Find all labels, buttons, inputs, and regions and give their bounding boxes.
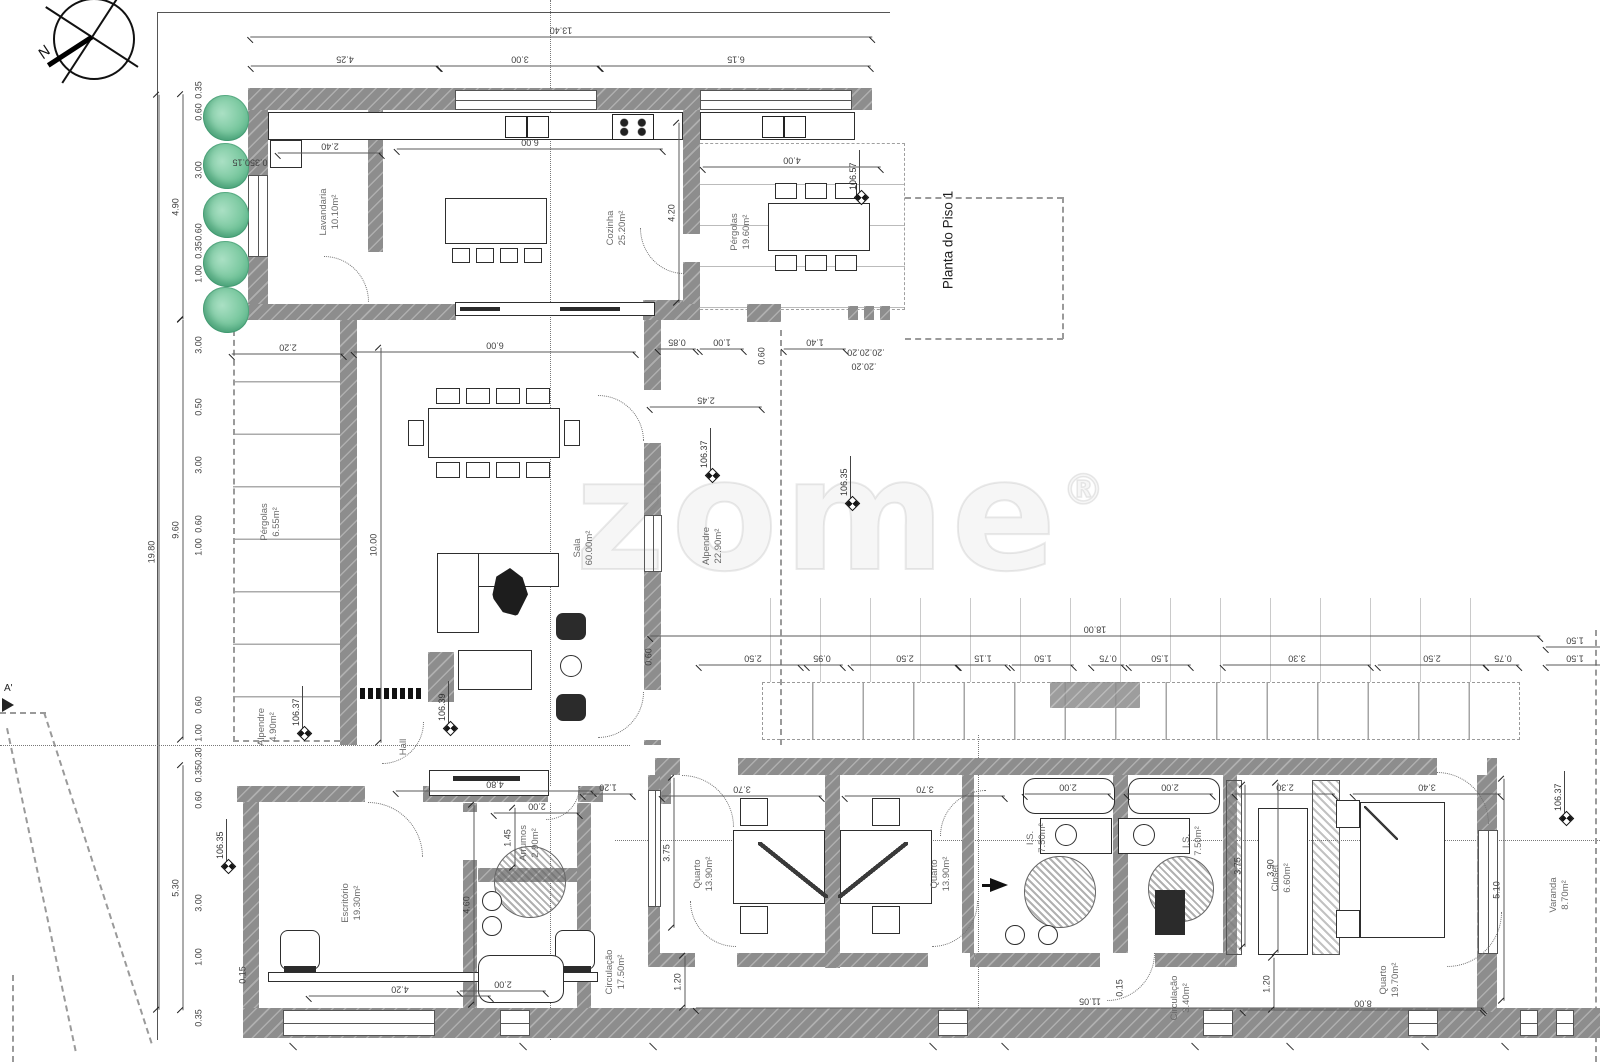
elevation-value: 106.35	[839, 456, 851, 498]
dimension-tick	[1501, 1043, 1509, 1051]
dimension-label: 3.00	[195, 894, 204, 912]
property-line	[1595, 630, 1597, 1062]
room-area: 22.90m²	[713, 527, 725, 565]
floor-plan-canvas: { "title": "Planta do Piso 1", "watermar…	[0, 0, 1600, 1062]
dimension-label: 6.00	[486, 341, 504, 350]
room-label: Alpendre 22.90m²	[701, 527, 725, 565]
room-area: 8.70m²	[1560, 877, 1572, 912]
dimension-value: 0.60	[194, 515, 204, 533]
dimension-label: 0.350.15	[232, 158, 267, 167]
dimension-label: 0.60	[195, 515, 204, 533]
dimension-value: 0.350.30	[194, 747, 204, 782]
chair	[466, 462, 490, 478]
room-name: Alpendre	[701, 527, 713, 565]
dimension-value: 0.60	[757, 347, 767, 365]
dimension-value: 3.00	[511, 55, 529, 65]
wall	[243, 1008, 1600, 1038]
pergola-bottom	[762, 682, 1520, 740]
elevation-value: 106.37	[1553, 771, 1565, 813]
dimension-value: 1.20	[1262, 975, 1272, 993]
window	[1556, 1010, 1574, 1036]
dimension-value: 1.50	[1034, 654, 1052, 664]
dimension-label: 3.75	[1234, 857, 1243, 875]
sink	[1133, 824, 1155, 846]
dimension-line	[397, 149, 663, 150]
dimension-label: 10.00	[370, 534, 379, 557]
wall	[683, 110, 700, 234]
room-area: 3.40m²	[1181, 976, 1193, 1021]
cabinet-detail	[460, 307, 500, 311]
dimension-line	[784, 349, 846, 350]
dimension-line	[1274, 958, 1275, 1010]
dimension-value: 1.50	[1566, 636, 1584, 646]
door-swing-arc	[690, 901, 736, 947]
room-area: 6.55m²	[271, 503, 283, 541]
dimension-label: 0.60	[195, 696, 204, 714]
dimension-label: 19.80	[148, 541, 157, 564]
dimension-value: 1.20	[599, 783, 617, 793]
pergola-beams	[770, 598, 1520, 682]
dimension-label: 1.20	[599, 783, 617, 792]
dimension-label: 6.00	[521, 138, 539, 147]
door-opening	[368, 252, 383, 304]
room-area: 19.60m²	[741, 213, 753, 251]
pergola-post	[747, 304, 781, 322]
dimension-label: 11.05	[1079, 997, 1101, 1006]
room-name: I.S.	[1025, 823, 1037, 853]
dimension-line	[601, 66, 871, 67]
dimension-value: 2.00	[528, 802, 546, 812]
dimension-line	[583, 794, 633, 795]
sink	[784, 116, 806, 138]
dimension-label: 2.00	[494, 980, 512, 989]
room-name: Circulação	[1169, 976, 1181, 1021]
dimension-value: 4.80	[486, 780, 504, 790]
room-label: Sala 60.00m²	[572, 531, 596, 566]
dimension-line	[650, 407, 762, 408]
dimension-value: 0.35	[194, 81, 204, 99]
window	[1203, 1010, 1233, 1036]
side-table	[560, 655, 582, 677]
dimension-line	[159, 95, 160, 1010]
chair	[775, 183, 797, 199]
dimension-label: 8.00	[1354, 999, 1372, 1008]
dimension-label: 2.50	[896, 654, 914, 663]
dimension-value: 4.20	[667, 204, 677, 222]
room-name: Quarto	[692, 857, 704, 892]
dimension-value: 3.00	[194, 894, 204, 912]
tree-icon	[203, 192, 249, 238]
dimension-label: 1.00	[195, 265, 204, 283]
dimension-value: 13.40	[550, 26, 573, 36]
dimension-value: .20.20	[851, 362, 876, 372]
elevation-value: 106.35	[215, 819, 227, 861]
dimension-line	[1353, 794, 1501, 795]
dimension-value: 0.35	[194, 1009, 204, 1027]
dimension-line	[460, 991, 546, 992]
chair	[408, 420, 424, 446]
dimension-label: 3.90	[1267, 859, 1276, 877]
room-name: Quarto	[929, 857, 941, 892]
dimension-value: 6.15	[727, 55, 745, 65]
dimension-value: 4.90	[171, 198, 181, 216]
dimension-value: 0.95	[813, 654, 831, 664]
dimension-value: 2.20	[279, 343, 297, 353]
registered-mark: ®	[1062, 465, 1110, 514]
dimension-value: 3.75	[1233, 857, 1243, 875]
coffee-table	[458, 650, 532, 690]
dimension-label: 1.00	[195, 538, 204, 556]
nightstand	[740, 906, 768, 934]
boundary-line	[157, 12, 890, 13]
dimension-label: 1.50	[1566, 654, 1584, 663]
wall	[1113, 775, 1128, 967]
bed-throw	[838, 842, 908, 898]
tree-icon	[203, 95, 249, 141]
room-area: 2.90m²	[530, 825, 542, 861]
room-label: Quarto 13.90m²	[929, 857, 953, 892]
door-opening	[683, 234, 700, 262]
sink	[505, 116, 527, 138]
dimension-value: 4.20	[391, 985, 409, 995]
dimension-line	[1127, 794, 1213, 795]
section-line	[0, 712, 46, 714]
pouf	[556, 613, 586, 640]
bidet	[482, 916, 502, 936]
dimension-value: 1.50	[1151, 654, 1169, 664]
dimension-value: 1.00	[194, 948, 204, 966]
room-label: Pérgolas 19.60m²	[729, 213, 753, 251]
dimension-label: 0.35	[195, 241, 204, 259]
dimension-label: 2.30	[1276, 783, 1294, 792]
chair	[805, 183, 827, 199]
dimension-line	[1546, 665, 1600, 666]
dimension-label: 0.95	[813, 654, 831, 663]
dimension-value: 3.75	[662, 844, 672, 862]
stool	[500, 248, 518, 263]
dimension-value: 1.15	[974, 654, 992, 664]
section-label: A'	[4, 683, 13, 694]
dimension-label: 2.00	[528, 802, 546, 811]
room-label: Varanda 8.70m²	[1548, 877, 1572, 912]
elevation-diamond-icon	[221, 859, 237, 875]
dimension-label: 0.75	[1099, 654, 1117, 663]
room-area: 7.50m²	[1193, 826, 1205, 856]
chair	[835, 255, 857, 271]
room-label: Quarto 13.90m²	[692, 857, 716, 892]
chair	[466, 388, 490, 404]
dimension-line	[1243, 1010, 1483, 1011]
room-label: Lavandaria 10.10m²	[318, 188, 342, 235]
dimension-line	[1278, 783, 1279, 953]
dimension-value: 2.00	[1161, 783, 1179, 793]
dimension-label: 3.75	[663, 844, 672, 862]
room-area: 6.60m²	[1282, 863, 1294, 893]
dimension-line	[1012, 665, 1074, 666]
pergola-post	[1050, 682, 1140, 708]
dimension-line	[1487, 665, 1520, 666]
office-chair-back	[284, 966, 316, 972]
dimension-tick	[929, 1043, 937, 1051]
dimension-label: 1.50	[1034, 654, 1052, 663]
window	[1520, 1010, 1538, 1036]
dimension-value: 19.80	[147, 541, 157, 564]
wall	[340, 320, 357, 745]
chair	[526, 388, 550, 404]
dimension-line	[1223, 665, 1371, 666]
sofa	[437, 553, 479, 633]
room-label: Arrumos 2.90m²	[518, 825, 542, 861]
toilet	[1005, 925, 1025, 945]
dimension-value: 3.70	[733, 785, 751, 795]
elevation-diamond-icon	[1559, 811, 1575, 827]
compass-icon: N	[35, 0, 147, 100]
room-name: Lavandaria	[318, 188, 330, 235]
door-swing-arc	[368, 802, 423, 857]
room-name: Alpendre	[256, 708, 268, 746]
dimension-value: 0.35	[194, 241, 204, 259]
pouf	[556, 694, 586, 721]
dimension-line	[1504, 779, 1505, 1001]
dimension-label: 0.60	[645, 648, 654, 666]
dimension-value: 0.60	[194, 696, 204, 714]
chair	[496, 462, 520, 478]
room-name: Quarto	[1378, 963, 1390, 998]
dimension-label: 2.50	[1423, 654, 1441, 663]
dimension-label: 18.00	[1084, 625, 1107, 634]
sink	[527, 116, 549, 138]
dimension-label: 0.35	[195, 1009, 204, 1027]
window	[938, 1010, 968, 1036]
elevation-value: 106.37	[699, 428, 711, 470]
dimension-label: 0.350.30	[195, 747, 204, 782]
stool	[452, 248, 470, 263]
dimension-label: 2.40	[321, 142, 339, 151]
room-area: 25.20m²	[617, 211, 629, 246]
pergola-post	[864, 306, 874, 320]
dimension-tick	[1286, 1043, 1294, 1051]
dimension-line	[1092, 665, 1125, 666]
dimension-label: 9.60	[172, 521, 181, 539]
dimension-label: .20.20.20	[847, 348, 885, 357]
dimension-line	[440, 66, 600, 67]
tree-icon	[203, 287, 249, 333]
dimension-label: 0.15	[1116, 979, 1125, 997]
dimension-value: 0.350.15	[232, 158, 267, 168]
dimension-label: 3.40	[1418, 783, 1436, 792]
dimension-label: 4.90	[172, 198, 181, 216]
room-label: I.S. 7.50m²	[1025, 823, 1049, 853]
room-name: Escritório	[340, 883, 352, 923]
chair	[436, 388, 460, 404]
dimension-label: 1.15	[974, 654, 992, 663]
dimension-value: 0.75	[1099, 654, 1117, 664]
section-arrow-icon	[2, 698, 14, 712]
pergola-outline	[905, 338, 1063, 340]
dimension-label: 1.45	[504, 829, 513, 847]
nightstand	[740, 798, 768, 826]
room-area: 13.90m²	[941, 857, 953, 892]
bed-throw	[758, 842, 828, 898]
window	[1408, 1010, 1438, 1036]
room-name: Circulação	[604, 950, 616, 995]
dimension-value: 1.00	[194, 538, 204, 556]
dimension-label: 2.45	[697, 396, 715, 405]
nightstand	[872, 906, 900, 934]
dimension-label: 0.15	[239, 966, 248, 984]
dimension-value: 8.00	[1354, 999, 1372, 1009]
dimension-line	[1378, 665, 1486, 666]
dimension-tick	[649, 1043, 657, 1051]
dimension-label: 0.35	[195, 81, 204, 99]
door-opening	[463, 812, 477, 860]
dimension-value: 2.00	[1059, 783, 1077, 793]
axis-line	[0, 745, 630, 746]
room-label: Circulação 17.50m²	[604, 950, 628, 995]
dimension-label: 0.60	[758, 347, 767, 365]
axis-line	[978, 735, 979, 1010]
dimension-label: 1.00	[713, 338, 731, 347]
door-swing-arc	[324, 256, 369, 302]
room-label: Hall	[398, 739, 410, 755]
dimension-label: 3.30	[1288, 654, 1306, 663]
elevation-value: 106.37	[291, 686, 303, 728]
dimension-line	[278, 153, 382, 154]
wall	[683, 262, 700, 304]
room-area: 10.10m²	[330, 188, 342, 235]
dimension-value: 1.00	[194, 724, 204, 742]
entry-arrow-icon	[990, 878, 1008, 892]
door-swing-arc	[940, 790, 986, 836]
dimension-line	[650, 636, 1540, 637]
door-opening	[365, 786, 423, 802]
dimension-label: 4.20	[391, 985, 409, 994]
chair	[526, 462, 550, 478]
dimension-line	[183, 95, 184, 320]
dimension-value: 6.00	[486, 341, 504, 351]
nightstand	[1336, 910, 1360, 938]
dimension-line	[674, 778, 675, 928]
dimension-label: 4.20	[668, 204, 677, 222]
door-swing-arc	[682, 775, 734, 827]
nightstand	[1336, 800, 1360, 828]
dimension-line	[183, 320, 184, 740]
dimension-line	[250, 37, 872, 38]
room-label: Escritório 19.30m²	[340, 883, 364, 923]
shower	[1024, 856, 1096, 928]
dimension-label: 0.60	[195, 791, 204, 809]
dimension-line	[679, 123, 680, 303]
dimension-label: 4.00	[783, 156, 801, 165]
dimension-value: 2.50	[1423, 654, 1441, 664]
room-area: 19.70m²	[1390, 963, 1402, 998]
dimension-line	[515, 808, 516, 868]
dimension-label: 3.70	[916, 785, 934, 794]
toilet	[482, 891, 502, 911]
dimension-label: 2.50	[744, 654, 762, 663]
dimension-value: 0.15	[238, 966, 248, 984]
dimension-label: 0.60	[195, 103, 204, 121]
room-name: I.S.	[1181, 826, 1193, 856]
pergola-left	[233, 330, 340, 742]
dimension-line	[1245, 785, 1246, 947]
pergola-post	[848, 306, 858, 320]
pergola-outline	[905, 197, 1063, 199]
dimension-label: 4.60	[463, 896, 472, 914]
pergola-outline	[1062, 197, 1064, 339]
dimension-value: 2.50	[744, 654, 762, 664]
dimension-line	[1235, 794, 1335, 795]
dimension-line	[699, 665, 807, 666]
dimension-line	[958, 665, 1008, 666]
dimension-label: 3.00	[195, 336, 204, 354]
sink	[1055, 824, 1077, 846]
dimension-label: 1.20	[674, 973, 683, 991]
room-area: 4.90m²	[268, 708, 280, 746]
window	[700, 90, 852, 110]
window	[648, 790, 661, 907]
section-line	[12, 975, 14, 1062]
chair	[805, 255, 827, 271]
dimension-label: 2.00	[1059, 783, 1077, 792]
dimension-value: 0.60	[194, 791, 204, 809]
dimension-value: 18.00	[1084, 625, 1107, 635]
room-area: 13.90m²	[704, 857, 716, 892]
stool	[524, 248, 542, 263]
room-area: 7.50m²	[1037, 823, 1049, 853]
dimension-value: 0.85	[668, 338, 686, 348]
dimension-value: 0.60	[194, 223, 204, 241]
dining-table	[428, 408, 560, 458]
bidet	[1038, 925, 1058, 945]
dimension-value: 0.60	[194, 103, 204, 121]
dimension-value: 1.00	[713, 338, 731, 348]
dimension-label: 0.75	[1494, 654, 1512, 663]
room-name: Arrumos	[518, 825, 530, 861]
dimension-line	[232, 354, 344, 355]
wall	[655, 758, 1490, 775]
dimension-value: 3.00	[194, 456, 204, 474]
office-chair	[280, 930, 320, 970]
chair	[775, 255, 797, 271]
dimension-value: 1.40	[806, 338, 824, 348]
dimension-label: 3.00	[511, 55, 529, 64]
dimension-value: 1.50	[1566, 654, 1584, 664]
dimension-value: 3.40	[1418, 783, 1436, 793]
dimension-label: .20.20	[851, 362, 876, 371]
room-name: Hall	[398, 739, 410, 755]
dimension-tick	[1421, 1043, 1429, 1051]
dimension-label: 1.00	[195, 948, 204, 966]
dimension-label: 4.25	[336, 55, 354, 64]
dimension-line	[685, 956, 686, 1008]
dimension-value: 10.00	[369, 534, 379, 557]
dimension-value: 2.50	[896, 654, 914, 664]
zome-watermark: zome®	[575, 425, 1110, 606]
dimension-label: 1.20	[1263, 975, 1272, 993]
cooktop-icon	[612, 114, 654, 140]
dimension-label: 3.70	[733, 785, 751, 794]
dimension-label: 5.10	[1493, 881, 1502, 899]
dimension-value: 9.60	[171, 521, 181, 539]
dimension-label: 0.50	[195, 398, 204, 416]
dimension-value: 1.20	[673, 973, 683, 991]
dimension-line	[851, 665, 959, 666]
room-name: Varanda	[1548, 877, 1560, 912]
dimension-value: 3.70	[916, 785, 934, 795]
dimension-line	[1546, 647, 1600, 648]
stool	[476, 248, 494, 263]
